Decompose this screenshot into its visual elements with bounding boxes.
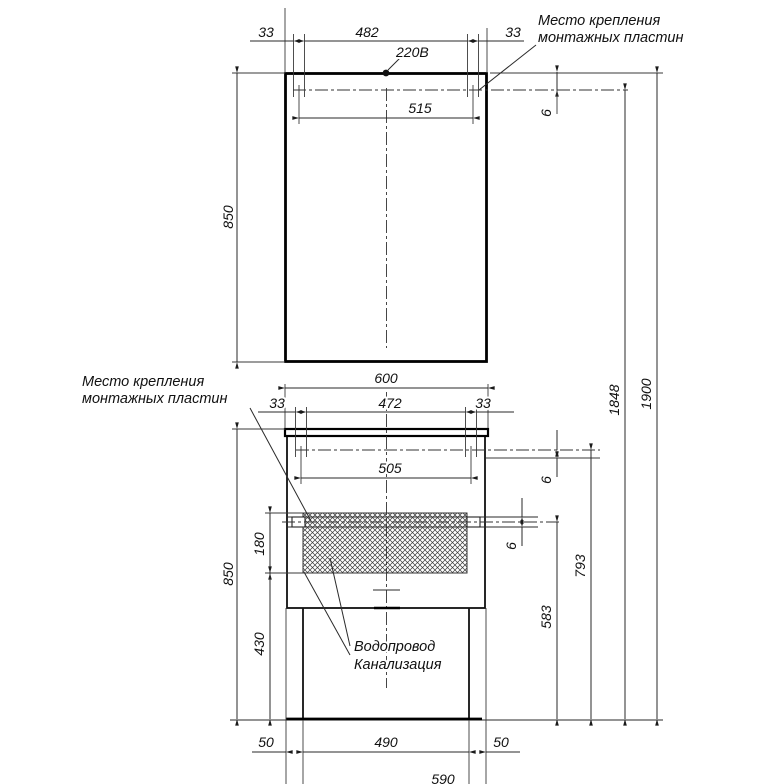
dim-label: 590: [431, 771, 455, 784]
drawing-canvas: 220В: [0, 0, 784, 784]
dim-mirror-plates-top: 33 482 33: [250, 24, 524, 41]
dim-label: 33: [475, 395, 491, 411]
plumbing-note: Канализация: [354, 657, 442, 673]
dim-strip-from-floor: 583: [538, 522, 557, 719]
mounting-plates-note-top: монтажных пластин: [538, 30, 683, 46]
dim-label: 515: [408, 100, 432, 116]
dim-label: 583: [538, 605, 554, 629]
dim-vanity-height: 850: [220, 429, 237, 719]
dim-label: 793: [572, 554, 588, 578]
mounting-plates-note-side: Место крепления: [82, 374, 204, 390]
dim-label: 600: [374, 370, 398, 386]
dim-mirror-plate-offset: 6: [538, 72, 557, 117]
dim-plates-from-floor: 793: [572, 450, 591, 719]
dim-label: 50: [493, 734, 509, 750]
annotation-plumbing: Водопровод Канализация: [304, 558, 442, 673]
leader-line: [250, 408, 311, 521]
dim-label: 33: [505, 24, 521, 40]
extension-lines: [232, 8, 663, 784]
dim-label: 180: [251, 532, 267, 556]
dim-vanity-plate-offset: 6: [538, 430, 557, 484]
dim-vanity-width: 600: [285, 370, 488, 388]
dim-vanity-plates-top: 33 472 33: [258, 395, 514, 412]
dim-floor-clearance: 430: [251, 573, 270, 719]
dim-label: 33: [269, 395, 285, 411]
leader-line: [479, 45, 536, 90]
mirror-mounting-plate-lines: [294, 34, 479, 124]
mounting-plates-note-side: монтажных пластин: [82, 391, 227, 407]
dim-label: 1848: [606, 384, 622, 415]
floor-line: [230, 719, 663, 720]
dim-label: 6: [503, 542, 519, 550]
dim-mirror-height: 850: [220, 73, 237, 362]
mirror-outline: [286, 74, 487, 362]
dim-label: 1900: [638, 378, 654, 409]
dim-mirror-plate-centers: 515: [299, 100, 473, 118]
dim-label: 850: [220, 205, 236, 229]
plumbing-note: Водопровод: [354, 639, 435, 655]
dim-label: 6: [538, 109, 554, 117]
dim-strip-offset: 6: [503, 498, 522, 550]
power-connection-dot: [383, 70, 390, 77]
dim-label: 50: [258, 734, 274, 750]
mounting-plates-note-top: Место крепления: [538, 13, 660, 29]
dim-hatch-height: 180: [251, 513, 270, 573]
dim-label: 850: [220, 562, 236, 586]
dim-label: 33: [258, 24, 274, 40]
mirror-section: 220В: [286, 34, 629, 362]
dim-vanity-plate-centers: 505: [301, 460, 471, 478]
dim-mirror-plate-line-height: 1848: [606, 90, 625, 719]
dim-label: 472: [378, 395, 402, 411]
dim-base-chain: 50 490 50: [252, 734, 520, 752]
dim-label: 430: [251, 632, 267, 656]
dim-label: 505: [378, 460, 402, 476]
dim-label: 490: [374, 734, 398, 750]
dim-overall-bottom: 590: [431, 771, 455, 784]
dim-label: 6: [538, 476, 554, 484]
dim-label: 482: [355, 24, 379, 40]
dim-total-height: 1900: [638, 73, 657, 719]
power-label: 220В: [395, 44, 429, 60]
